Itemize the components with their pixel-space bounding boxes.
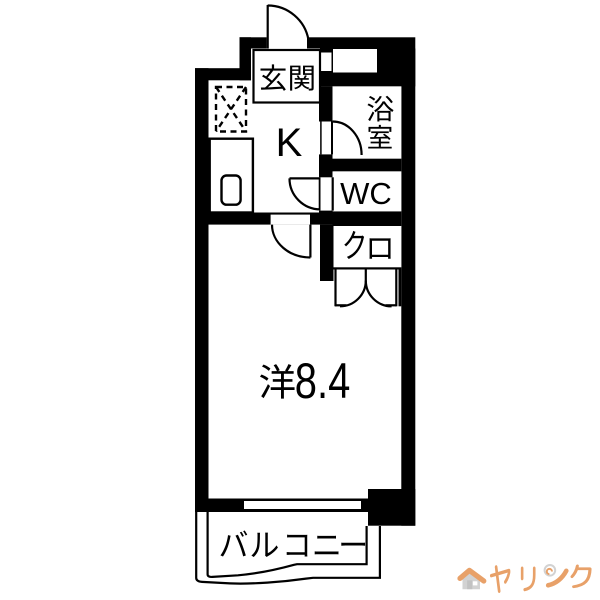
svg-text:K: K: [276, 121, 303, 165]
svg-text:WC: WC: [340, 176, 392, 211]
svg-text:8.4: 8.4: [295, 352, 351, 409]
